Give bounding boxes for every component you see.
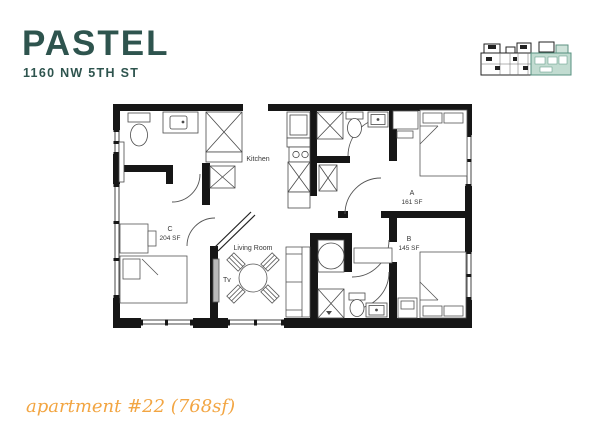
washer-icon [318,243,344,269]
label-bedroom-c-area: 204 SF [160,235,181,242]
floorplan-page: PASTEL 1160 NW 5TH ST [0,0,600,436]
dining-table [227,253,279,303]
sink-icon [170,116,187,129]
desk [393,111,418,129]
mini-map [481,42,571,75]
bedroom-a-furniture [393,110,467,176]
shelf [119,142,124,182]
table-icon [239,264,267,292]
door-arcs [172,118,389,309]
label-bedroom-a: A [410,190,415,197]
bathroom-2 [318,289,387,318]
couch [286,247,310,317]
minimap-block-highlighted [556,45,568,53]
pillow [423,113,442,123]
chair [397,131,413,138]
label-living-room: Living Room [234,245,273,252]
bedroom-c-door-arc [187,218,215,246]
toilet-tank [346,112,363,119]
pillow [423,306,442,316]
closet-shelf [206,152,242,162]
desk [354,248,392,263]
desk [120,224,148,253]
lower-cabinet [288,192,310,208]
tv-icon [213,259,219,302]
toilet-icon [350,300,364,317]
label-bedroom-b-area: 145 SF [399,245,420,252]
toilet-tank [349,293,365,300]
label-tv: Tv [223,277,231,284]
pillow [444,113,463,123]
pillow [123,259,140,279]
label-bedroom-a-area: 161 SF [402,199,423,206]
washer-dryer [318,240,344,272]
label-bedroom-b: B [407,236,412,243]
bathroom-a [317,112,388,139]
bedroom-a-door-arc [345,178,381,214]
counter [287,138,310,147]
label-bedroom-c: C [167,226,172,233]
label-kitchen: Kitchen [246,156,269,163]
toilet-tank [128,113,150,122]
toilet-icon [131,124,148,146]
minimap-block [539,42,554,52]
pillow [444,306,463,316]
desk-chair [148,231,156,246]
kitchen-fixtures [287,112,310,208]
bathroom-1-door-arc [172,174,200,202]
apartment-caption: apartment #22 (768sf) [26,396,235,417]
floor-plan: Kitchen Living Room Tv A 161 SF B 145 SF… [0,0,600,436]
toilet-icon [348,119,362,138]
